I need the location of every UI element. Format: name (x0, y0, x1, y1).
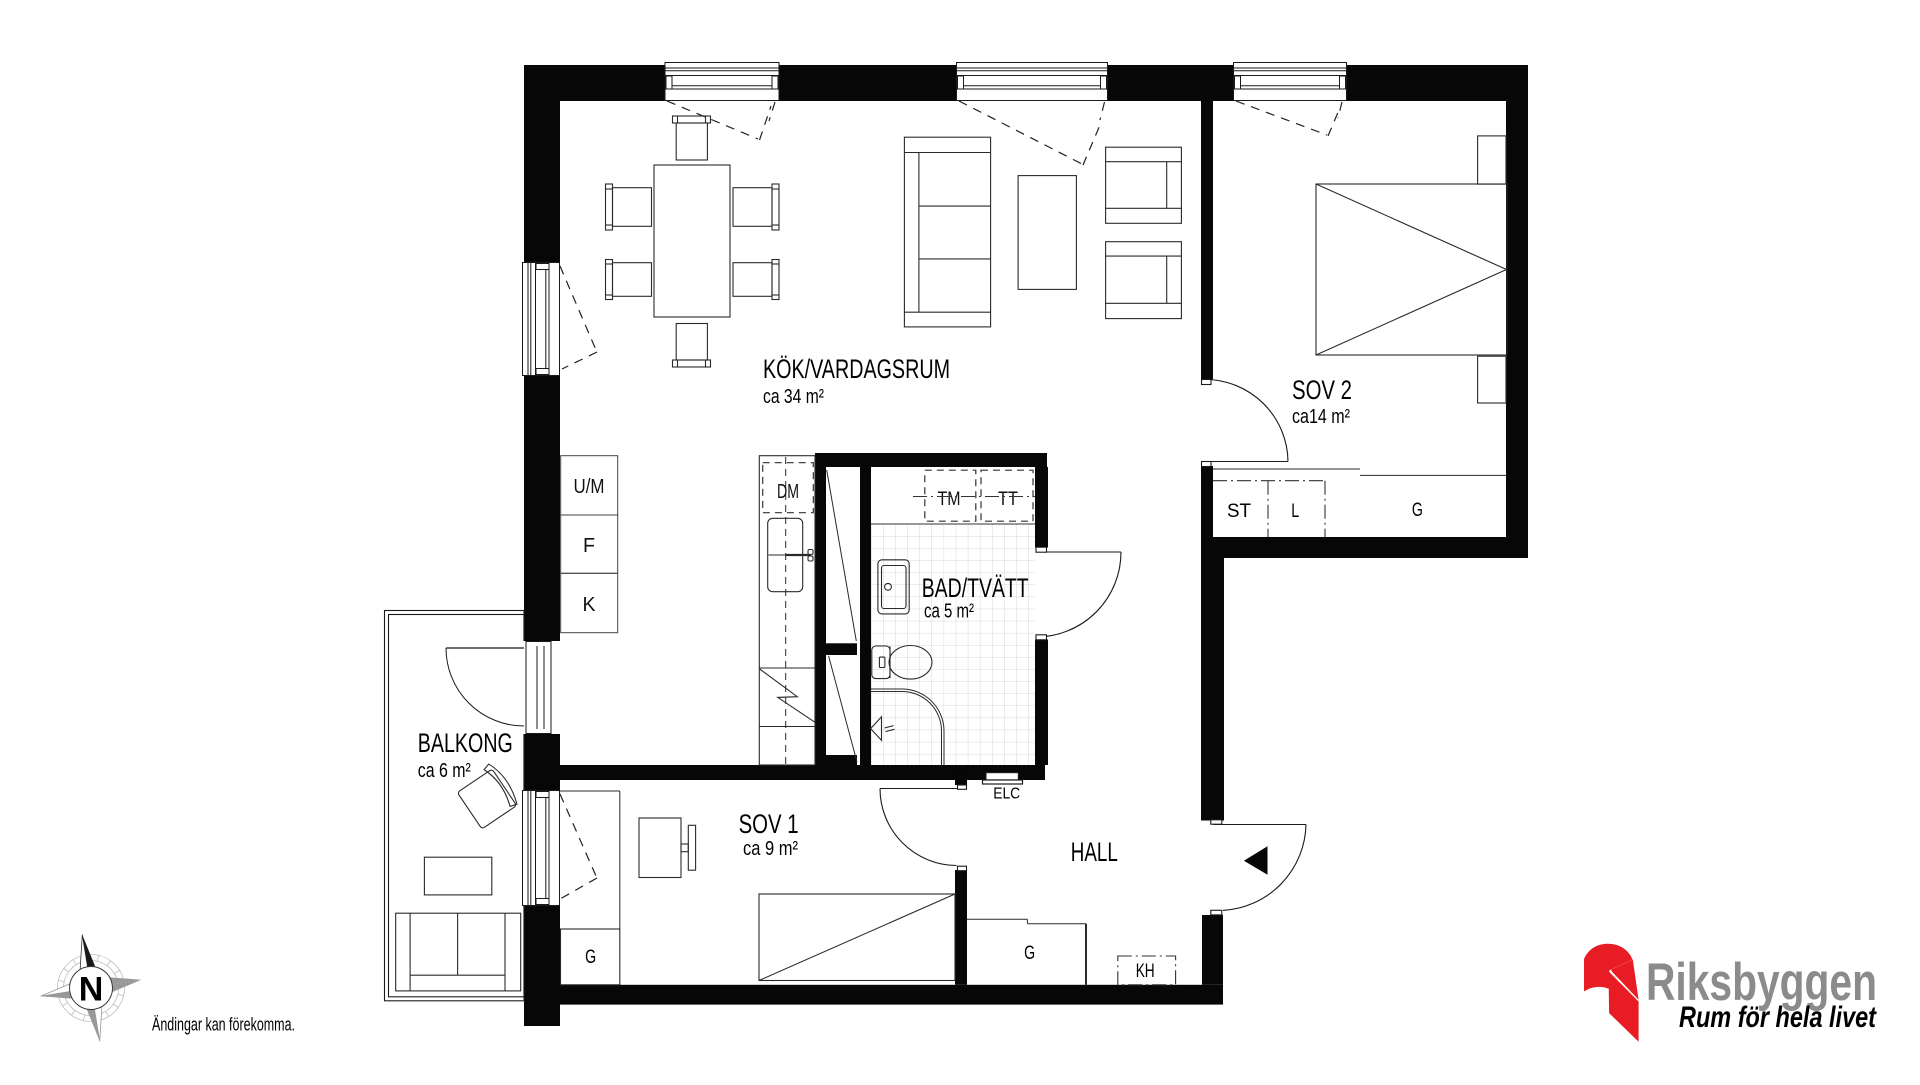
svg-text:ST: ST (1227, 501, 1251, 522)
svg-text:G: G (1024, 943, 1035, 964)
svg-text:G: G (1412, 500, 1423, 521)
svg-text:TM: TM (938, 489, 961, 510)
svg-text:Rum för hela livet: Rum för hela livet (1679, 1001, 1878, 1034)
svg-text:ca 9 m²: ca 9 m² (743, 838, 798, 860)
svg-text:TT: TT (998, 489, 1018, 510)
svg-text:DM: DM (777, 481, 799, 503)
svg-text:ca 6 m²: ca 6 m² (418, 760, 471, 782)
svg-text:K: K (583, 594, 597, 616)
svg-text:HALL: HALL (1071, 837, 1118, 867)
svg-text:L: L (1291, 501, 1299, 522)
svg-text:ca 34 m²: ca 34 m² (763, 386, 824, 408)
svg-text:N: N (79, 970, 104, 1008)
svg-text:G: G (585, 947, 596, 968)
svg-text:KÖK/VARDAGSRUM: KÖK/VARDAGSRUM (763, 354, 950, 384)
svg-text:BAD/TVÄTT: BAD/TVÄTT (922, 573, 1029, 603)
svg-text:SOV 2: SOV 2 (1292, 375, 1352, 405)
svg-text:ca14 m²: ca14 m² (1292, 406, 1350, 428)
svg-text:ELC: ELC (993, 786, 1020, 803)
svg-text:U/M: U/M (574, 476, 605, 498)
svg-text:BALKONG: BALKONG (418, 728, 513, 758)
svg-text:SOV 1: SOV 1 (739, 809, 799, 839)
svg-text:ca 5 m²: ca 5 m² (924, 601, 974, 623)
svg-text:KH: KH (1136, 961, 1155, 982)
svg-text:F: F (583, 535, 595, 557)
svg-text:Ändingar kan förekomma.: Ändingar kan förekomma. (152, 1014, 295, 1035)
